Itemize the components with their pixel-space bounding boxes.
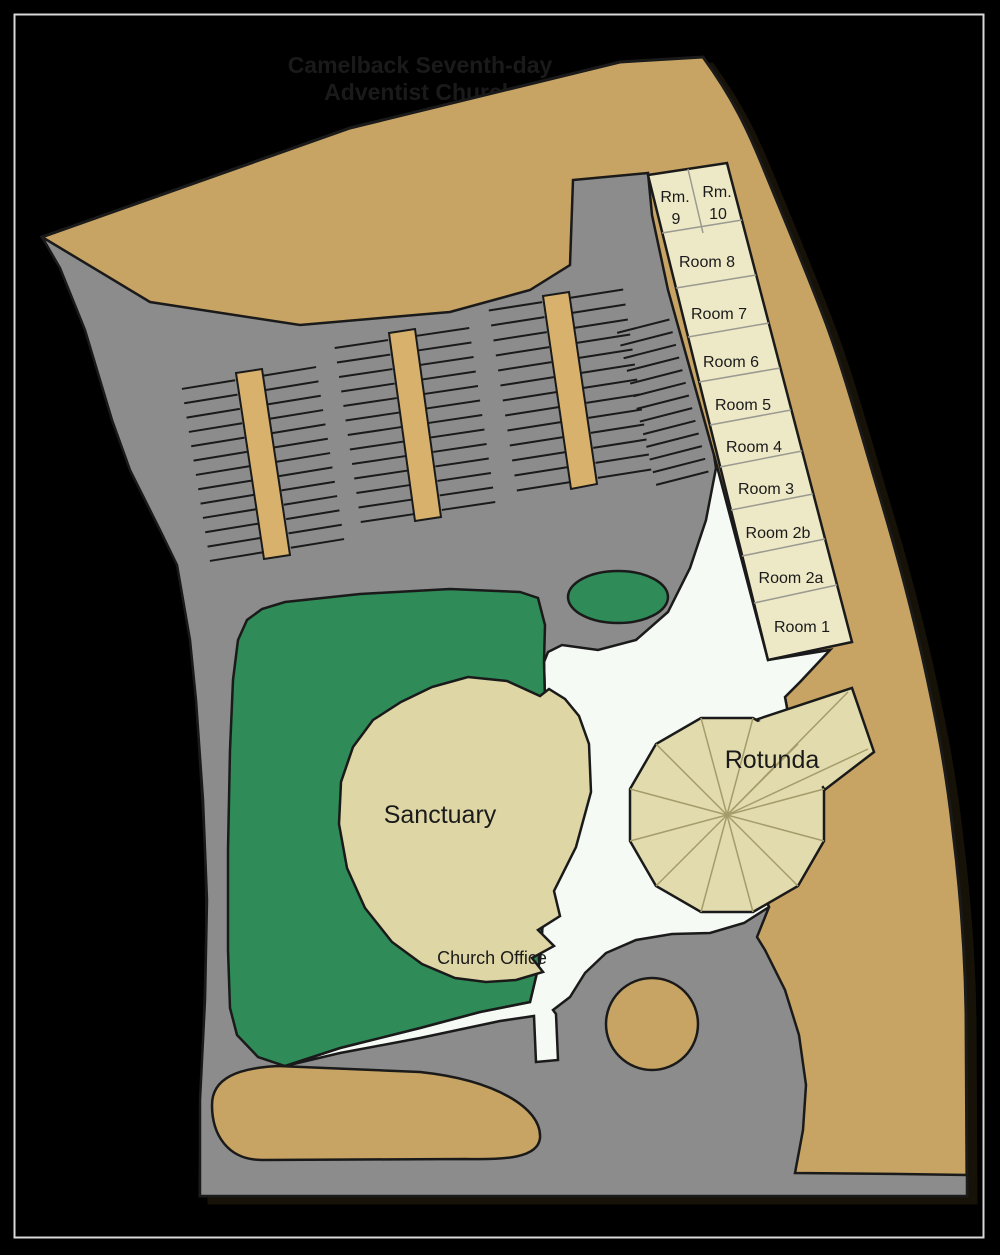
sanctuary-label: Sanctuary	[384, 801, 497, 829]
room-5-label: Room 5	[715, 397, 771, 414]
room-4-label: Room 4	[726, 439, 782, 456]
room-10-label-line2: 10	[709, 206, 727, 223]
site-map: Camelback Seventh-day Adventist Church R…	[0, 0, 1000, 1255]
room-9-label-line2: 9	[672, 211, 681, 228]
room-3-label: Room 3	[738, 481, 794, 498]
rotunda-label: Rotunda	[725, 746, 820, 774]
room-6-label: Room 6	[703, 354, 759, 371]
room-10-label-line1: Rm.	[702, 184, 731, 201]
room-7-label: Room 7	[691, 306, 747, 323]
room-2b-label: Room 2b	[746, 525, 811, 542]
room-1-label: Room 1	[774, 619, 830, 636]
roundabout-center-island	[606, 978, 698, 1070]
room-8-label: Room 8	[679, 254, 735, 271]
map-title-line1: Camelback Seventh-day	[288, 52, 553, 78]
lawn-oval	[568, 571, 668, 623]
room-2a-label: Room 2a	[759, 570, 824, 587]
room-9-label-line1: Rm.	[660, 189, 689, 206]
church-office-label: Church Office	[437, 948, 547, 968]
